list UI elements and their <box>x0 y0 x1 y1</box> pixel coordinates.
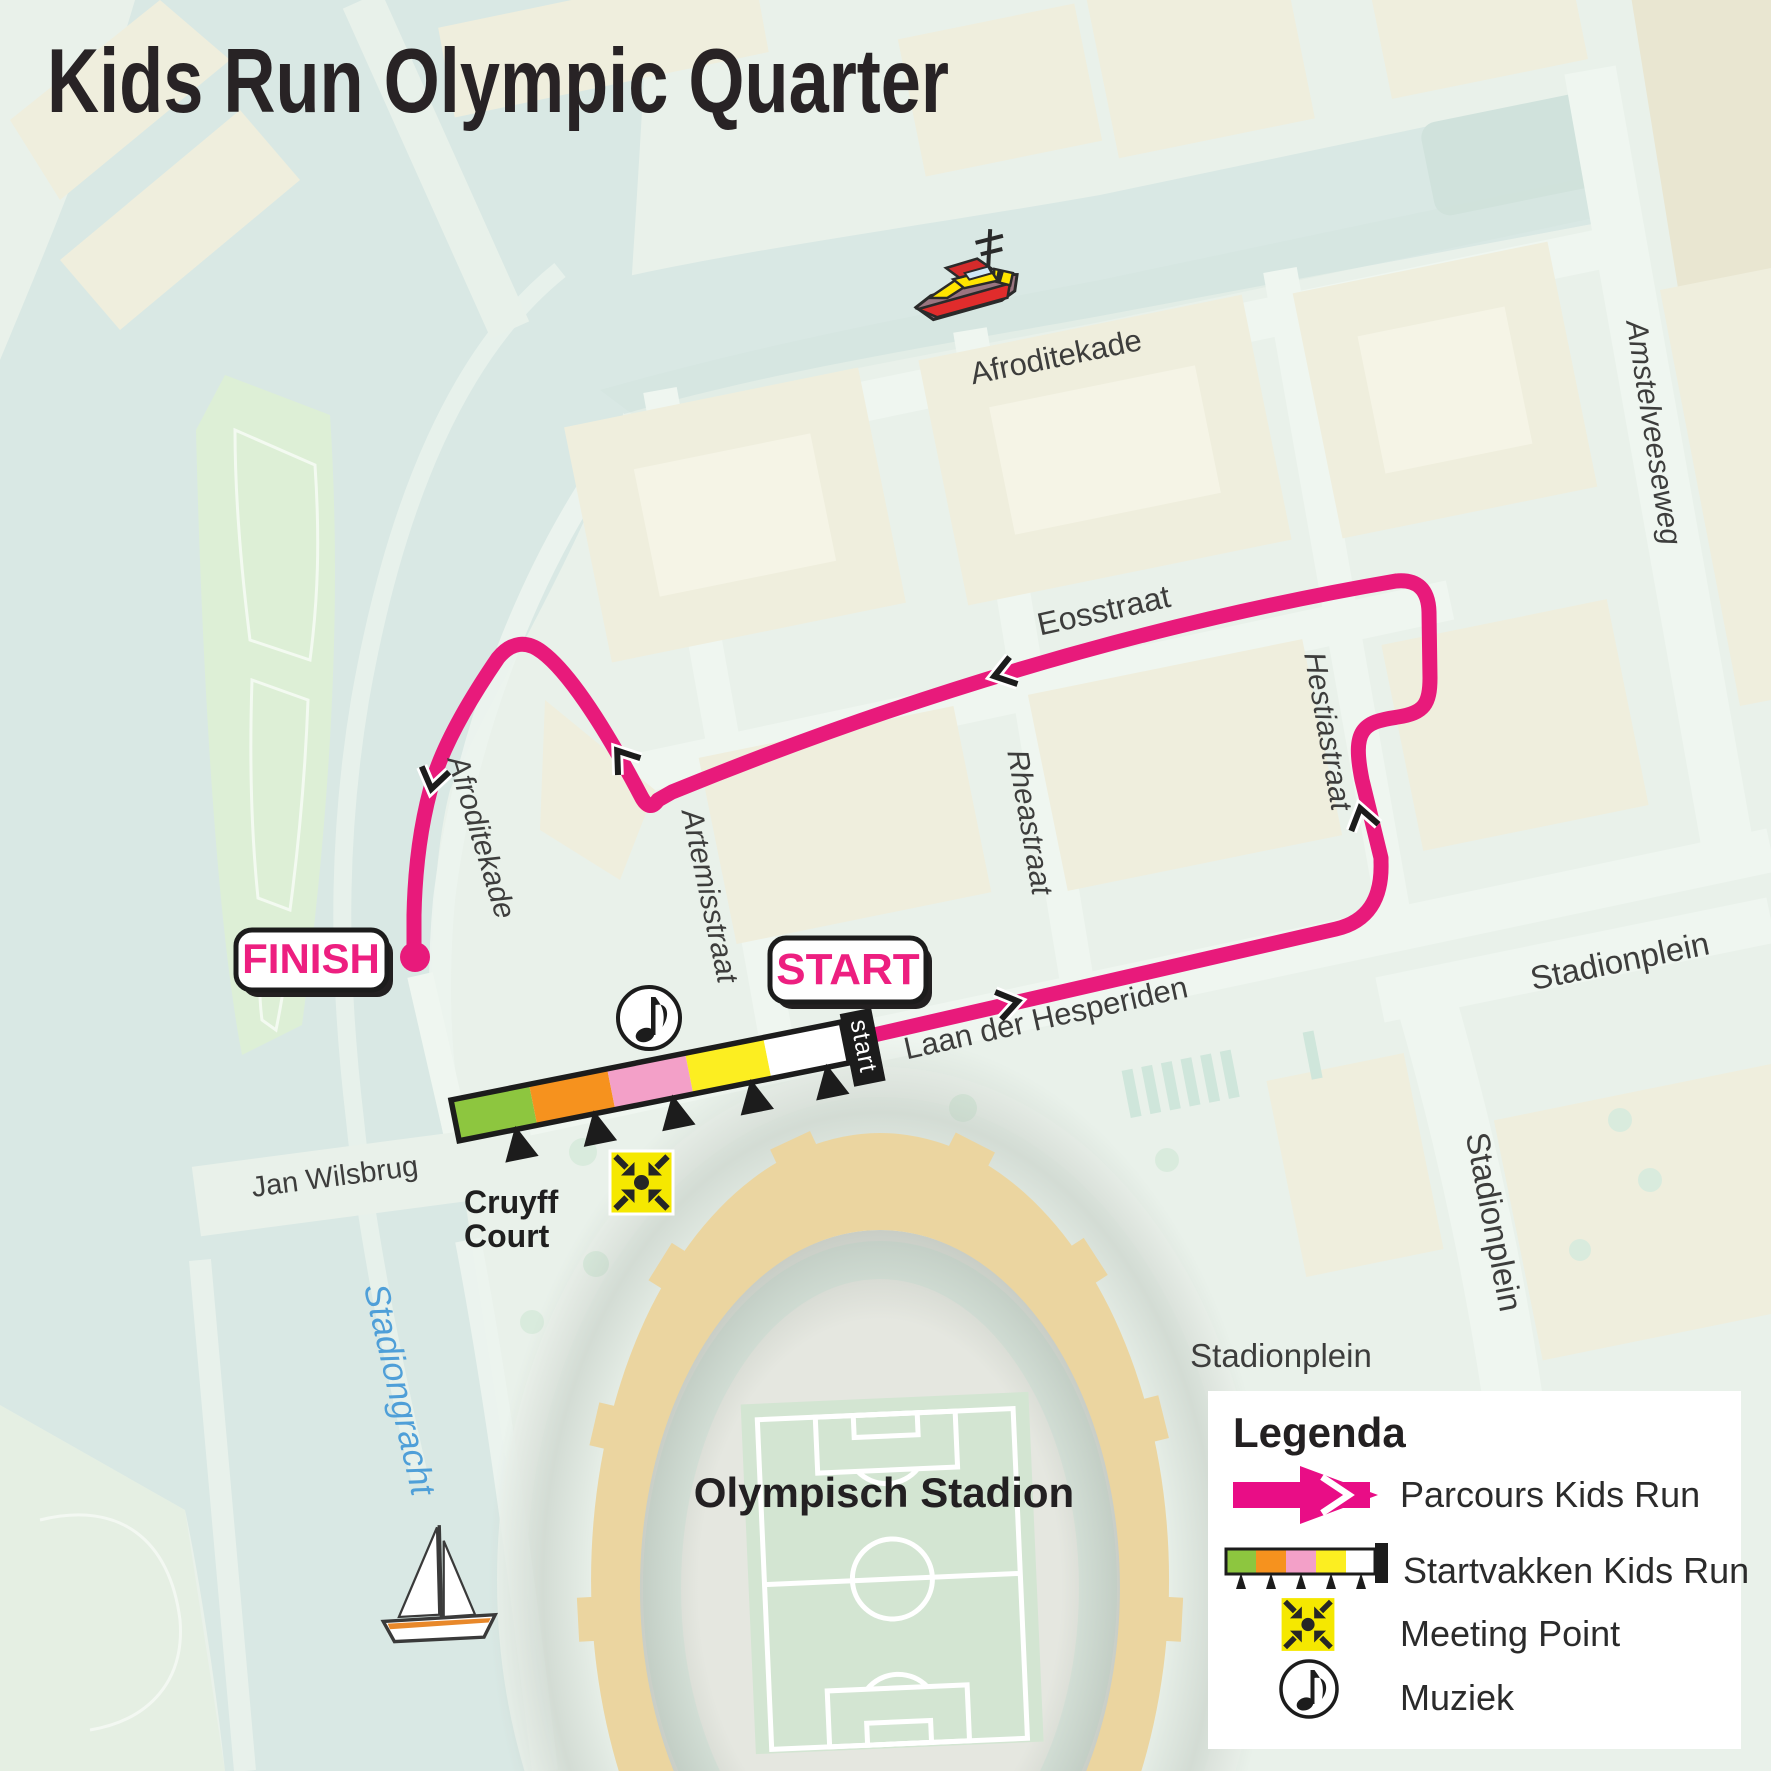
svg-text:Legenda: Legenda <box>1233 1409 1406 1456</box>
svg-text:Startvakken Kids Run: Startvakken Kids Run <box>1403 1550 1749 1591</box>
svg-text:Court: Court <box>464 1218 550 1254</box>
svg-text:Cruyff: Cruyff <box>464 1184 559 1220</box>
svg-text:START: START <box>776 945 920 994</box>
svg-text:Stadionplein: Stadionplein <box>1190 1337 1372 1374</box>
svg-text:Muziek: Muziek <box>1400 1677 1515 1718</box>
svg-text:Meeting Point: Meeting Point <box>1400 1613 1620 1654</box>
svg-text:FINISH: FINISH <box>242 935 380 982</box>
svg-text:Kids Run Olympic Quarter: Kids Run Olympic Quarter <box>47 31 949 132</box>
svg-text:Parcours Kids Run: Parcours Kids Run <box>1400 1474 1700 1515</box>
svg-text:Olympisch Stadion: Olympisch Stadion <box>694 1469 1074 1516</box>
